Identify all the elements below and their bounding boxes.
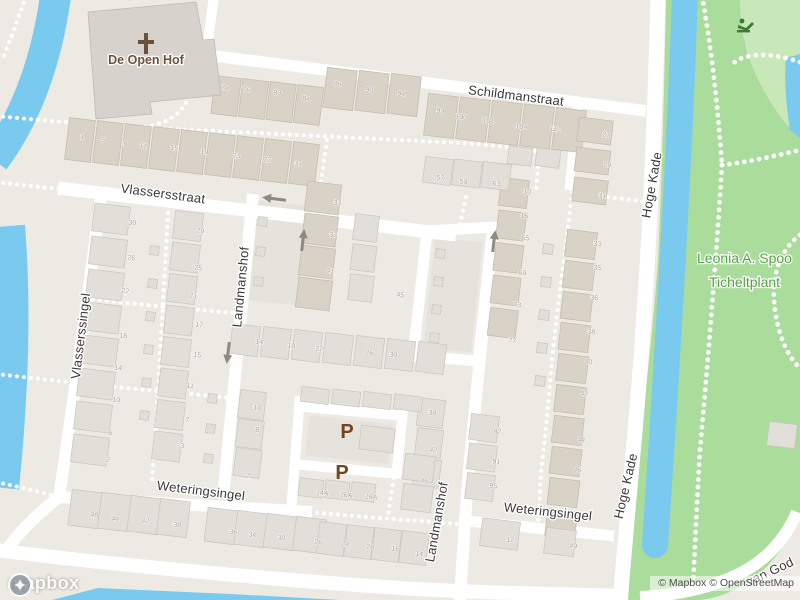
house-number: 29 bbox=[196, 228, 205, 236]
house-number: 31 bbox=[598, 193, 607, 201]
building bbox=[97, 492, 131, 531]
building bbox=[88, 236, 127, 268]
building bbox=[205, 423, 215, 433]
house-number: 80 bbox=[273, 90, 282, 98]
building bbox=[424, 93, 459, 138]
house-number: 33 bbox=[593, 241, 602, 249]
house-number: 11 bbox=[139, 143, 147, 151]
house-number: 109 bbox=[515, 123, 528, 131]
house-number: 18 bbox=[119, 333, 128, 341]
building bbox=[403, 453, 436, 482]
building bbox=[371, 527, 402, 562]
building bbox=[253, 276, 263, 286]
building bbox=[68, 489, 102, 528]
house-number: 25 bbox=[194, 265, 203, 273]
house-number: 42 bbox=[580, 391, 589, 399]
house-number: 18 bbox=[287, 343, 296, 351]
house-number: 76 bbox=[242, 87, 251, 95]
house-number: 21 bbox=[189, 293, 198, 301]
osm-attribution-link[interactable]: © OpenStreetMap bbox=[709, 577, 794, 589]
building bbox=[295, 277, 332, 311]
building bbox=[163, 305, 194, 336]
house-number: 38 bbox=[587, 329, 596, 337]
building bbox=[350, 244, 377, 273]
house-number: 59 bbox=[459, 179, 468, 187]
building bbox=[145, 311, 155, 321]
house-number: 44 bbox=[577, 437, 586, 445]
building bbox=[322, 332, 353, 365]
building bbox=[433, 276, 443, 286]
house-number: 16 bbox=[520, 213, 529, 221]
house-number: 42 bbox=[141, 518, 150, 526]
house-number: 12 bbox=[506, 537, 515, 545]
house-number: 16 bbox=[391, 546, 400, 554]
house-number: 87 bbox=[493, 429, 502, 437]
building bbox=[393, 394, 423, 412]
building bbox=[572, 177, 609, 205]
house-number: 36 bbox=[229, 529, 238, 537]
parking-icon: P bbox=[335, 462, 348, 484]
house-number: 74 bbox=[221, 85, 230, 93]
house-number: 73 bbox=[513, 302, 522, 310]
house-number: 63 bbox=[492, 181, 501, 189]
map-graphics: De Open Hof Leonia A. Spoo Ticheltplant … bbox=[0, 0, 800, 600]
house-number: 48 bbox=[90, 512, 99, 520]
house-number: 94 bbox=[397, 91, 406, 99]
building bbox=[507, 146, 533, 167]
house-number: 95 bbox=[489, 483, 498, 491]
house-number: 90 bbox=[365, 87, 374, 95]
building bbox=[540, 276, 551, 287]
building bbox=[535, 148, 561, 169]
map-canvas[interactable]: De Open Hof Leonia A. Spoo Ticheltplant … bbox=[0, 0, 800, 600]
building bbox=[293, 85, 323, 126]
building bbox=[73, 401, 112, 433]
house-number: 14 bbox=[415, 551, 424, 559]
house-number: 22 bbox=[121, 288, 130, 296]
building bbox=[172, 210, 203, 241]
house-number: 30 bbox=[389, 352, 398, 360]
building bbox=[429, 332, 439, 342]
building bbox=[452, 159, 483, 188]
house-number: 77 bbox=[508, 338, 517, 346]
building bbox=[414, 428, 443, 459]
house-number: 11 bbox=[186, 383, 194, 391]
building bbox=[257, 216, 267, 226]
house-number: 20 bbox=[366, 544, 375, 552]
house-number: 31 bbox=[294, 161, 303, 169]
house-number: 49 bbox=[569, 543, 578, 551]
house-number: 33 bbox=[333, 200, 342, 208]
building bbox=[431, 304, 441, 314]
parking-icon: P bbox=[340, 421, 353, 443]
building bbox=[556, 353, 589, 383]
building bbox=[149, 245, 159, 255]
house-number: 37 bbox=[329, 232, 338, 240]
building bbox=[536, 342, 547, 353]
building bbox=[151, 431, 182, 462]
house-number: 112 bbox=[549, 125, 561, 133]
house-number: 27 bbox=[263, 157, 272, 165]
house-number: 57 bbox=[436, 175, 445, 183]
house-number: 26 bbox=[314, 539, 323, 547]
mapbox-logo-icon bbox=[8, 573, 32, 597]
house-number: 14 bbox=[114, 365, 123, 373]
building bbox=[577, 117, 614, 145]
building bbox=[147, 278, 157, 288]
building bbox=[553, 384, 586, 414]
mapbox-attribution-link[interactable]: © Mapbox bbox=[658, 577, 706, 589]
building bbox=[157, 368, 188, 399]
house-number: 23 bbox=[232, 153, 241, 161]
mapbox-logo[interactable]: mapbox bbox=[8, 573, 79, 594]
building bbox=[435, 248, 445, 258]
house-number: 46 bbox=[573, 467, 582, 475]
building bbox=[767, 421, 798, 448]
house-number: 65 bbox=[521, 235, 530, 243]
house-number: 91 bbox=[492, 459, 501, 467]
building bbox=[353, 214, 380, 243]
house-number: 26 bbox=[127, 255, 136, 263]
building bbox=[348, 274, 375, 303]
house-number: 84 bbox=[302, 96, 311, 104]
house-number: 15 bbox=[193, 352, 202, 360]
building bbox=[359, 425, 396, 453]
building bbox=[141, 377, 151, 387]
house-number: 35 bbox=[593, 265, 602, 273]
house-number: 27 bbox=[602, 132, 611, 140]
building bbox=[156, 498, 190, 537]
building bbox=[234, 510, 268, 547]
house-number: 104 bbox=[482, 117, 495, 125]
house-number: 44 bbox=[111, 516, 120, 524]
attribution-bar: © Mapbox © OpenStreetMap bbox=[650, 576, 800, 591]
building bbox=[415, 341, 446, 374]
building bbox=[542, 243, 553, 254]
house-number: 40 bbox=[584, 359, 593, 367]
building bbox=[207, 393, 217, 403]
house-number: 99 bbox=[436, 108, 445, 116]
house-number: 45 bbox=[396, 292, 405, 300]
building bbox=[203, 453, 213, 463]
house-number: 100 bbox=[455, 113, 468, 121]
building bbox=[205, 133, 236, 178]
house-number: 30 bbox=[277, 535, 286, 543]
house-number: 30 bbox=[128, 220, 137, 228]
building bbox=[255, 246, 265, 256]
house-number: 19 bbox=[200, 149, 209, 157]
house-number: 38 bbox=[428, 410, 437, 418]
building bbox=[401, 483, 434, 512]
building bbox=[235, 419, 264, 450]
house-number: 46 bbox=[420, 478, 429, 486]
building bbox=[301, 213, 338, 247]
building bbox=[538, 309, 549, 320]
house-number: 10 bbox=[523, 189, 532, 197]
building bbox=[534, 375, 545, 386]
house-number: 26 bbox=[365, 350, 374, 358]
building bbox=[289, 142, 320, 187]
building bbox=[263, 513, 297, 550]
building bbox=[558, 322, 591, 352]
house-number: 29 bbox=[603, 162, 612, 170]
building bbox=[160, 336, 191, 367]
house-number: 38 bbox=[173, 522, 182, 530]
building bbox=[93, 121, 124, 166]
building bbox=[304, 181, 341, 215]
building bbox=[127, 495, 161, 534]
building bbox=[479, 518, 520, 550]
house-number: 42 bbox=[429, 447, 438, 455]
park-label-line1: Leonia A. Spoo bbox=[697, 250, 792, 266]
building bbox=[323, 67, 358, 110]
building bbox=[154, 399, 185, 430]
house-number: 34 bbox=[248, 532, 257, 540]
building bbox=[70, 434, 109, 466]
building bbox=[487, 307, 518, 338]
building bbox=[331, 389, 361, 407]
house-number: 41 bbox=[326, 268, 335, 276]
house-number: 22 bbox=[315, 346, 324, 354]
house-number: 36 bbox=[590, 295, 599, 303]
building bbox=[237, 390, 266, 421]
house-number: 15 bbox=[170, 145, 179, 153]
building bbox=[547, 477, 580, 507]
building bbox=[139, 410, 149, 420]
building bbox=[560, 291, 593, 321]
house-number: 69 bbox=[518, 270, 527, 278]
building bbox=[238, 79, 268, 120]
building bbox=[266, 82, 296, 123]
church-label: De Open Hof bbox=[108, 53, 185, 67]
building bbox=[362, 391, 392, 409]
building bbox=[204, 507, 238, 544]
building bbox=[143, 344, 153, 354]
building bbox=[91, 203, 130, 235]
building bbox=[467, 443, 498, 472]
building bbox=[300, 386, 330, 404]
house-number: 24 bbox=[341, 541, 350, 549]
house-number: 14 bbox=[255, 339, 264, 347]
house-number: 10 bbox=[253, 405, 262, 413]
park-label-line2: Ticheltplant bbox=[709, 274, 780, 290]
building bbox=[562, 260, 595, 290]
house-number: 10 bbox=[112, 397, 121, 405]
house-number: 17 bbox=[195, 322, 204, 330]
house-number: 86 bbox=[333, 81, 342, 89]
